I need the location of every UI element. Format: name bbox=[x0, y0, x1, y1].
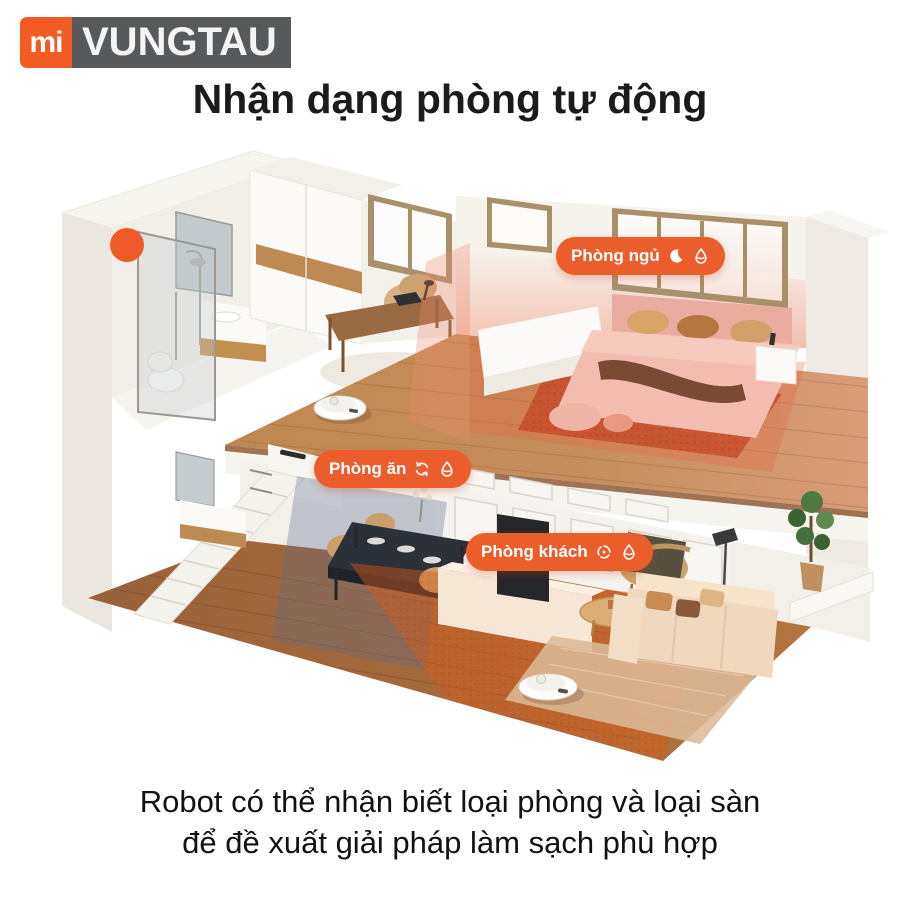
shower-marker-dot bbox=[110, 228, 144, 262]
left-exterior-wall bbox=[62, 213, 112, 632]
sofa-pillow bbox=[675, 599, 701, 618]
room-badge-label: Phòng ngủ bbox=[571, 246, 660, 266]
caption: Robot có thể nhận biết loại phòng và loạ… bbox=[0, 781, 900, 863]
drop-icon bbox=[438, 460, 456, 478]
moon-icon bbox=[667, 247, 685, 265]
room-badge-dining: Phòng ăn bbox=[314, 450, 471, 488]
fan-icon bbox=[595, 543, 613, 561]
caption-line-2: để đề xuất giải pháp làm sạch phù hợp bbox=[0, 822, 900, 863]
mi-logo: mi bbox=[20, 17, 72, 68]
brand-name: VUNGTAU bbox=[72, 17, 291, 68]
room-badge-label: Phòng ăn bbox=[329, 459, 406, 479]
room-badge-bedroom: Phòng ngủ bbox=[556, 237, 725, 275]
shower-glass bbox=[138, 232, 215, 420]
page-title: Nhận dạng phòng tự động bbox=[0, 76, 900, 123]
refresh-icon bbox=[413, 460, 431, 478]
brand-logo: mi VUNGTAU bbox=[20, 17, 291, 68]
caption-line-1: Robot có thể nhận biết loại phòng và loạ… bbox=[0, 781, 900, 822]
drop-icon bbox=[692, 247, 710, 265]
room-badge-label: Phòng khách bbox=[481, 542, 588, 562]
sofa-pillow bbox=[645, 590, 673, 611]
powder-mirror bbox=[176, 452, 214, 506]
drop-icon bbox=[620, 543, 638, 561]
nightstand bbox=[756, 346, 796, 384]
room-badge-living: Phòng khách bbox=[466, 533, 653, 571]
